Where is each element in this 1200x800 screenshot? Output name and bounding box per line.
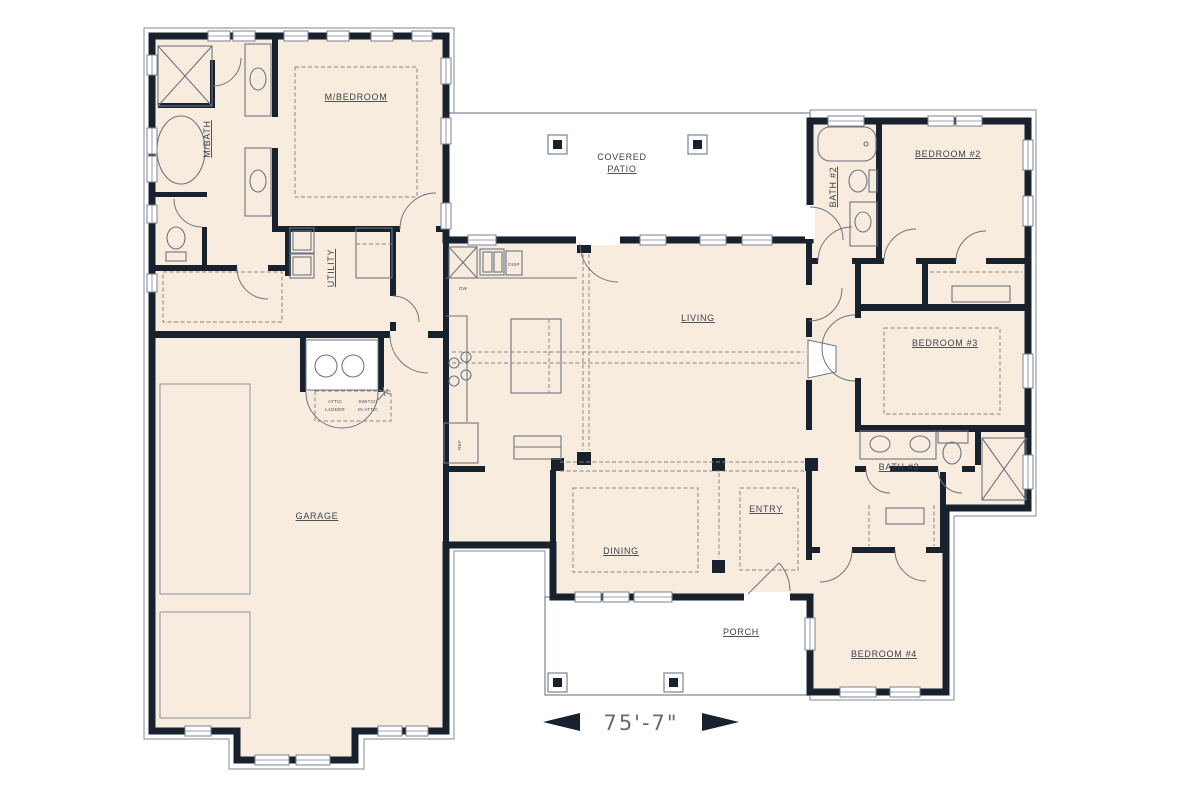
window <box>1023 196 1033 226</box>
window <box>468 235 496 245</box>
window <box>634 592 672 602</box>
water-heater-closet <box>306 340 378 390</box>
window <box>700 235 726 245</box>
window <box>147 156 157 182</box>
wall-hall-bed3-lower <box>855 378 861 430</box>
window <box>890 687 920 697</box>
label-dining: DINING <box>603 546 639 556</box>
window <box>147 205 157 223</box>
wall-bath3-shower <box>975 432 981 465</box>
window <box>742 235 772 245</box>
patio-hall-door-gap <box>805 205 815 239</box>
window <box>233 31 255 41</box>
floor-plan-page: ATTIC LADDER SWITCH IN ATTIC M/BEDROOM M… <box>0 0 1200 800</box>
label-master-bath: M/BATH <box>202 120 212 158</box>
window <box>185 726 211 736</box>
wall-bath3-south-a <box>855 466 866 472</box>
wall-closet-north <box>152 265 237 271</box>
window <box>147 274 157 292</box>
label-covered-patio-1: COVERED <box>597 152 646 162</box>
window <box>208 31 230 41</box>
front-door-gap <box>744 592 790 602</box>
attic-note-text-1: ATTIC <box>328 399 342 404</box>
patio-post <box>688 135 707 154</box>
wall-utility-east-stub <box>390 322 396 331</box>
wall-wc-north <box>152 192 207 197</box>
attic-note-text-2: LADDER <box>325 407 345 412</box>
wall-bath2-south-a <box>810 258 818 264</box>
label-bath2: BATH #2 <box>828 167 838 208</box>
label-disposal: DISP <box>508 262 520 267</box>
porch-post <box>664 673 683 692</box>
window <box>327 31 349 41</box>
label-refrigerator: REF <box>457 440 462 450</box>
wall-whcloset-west <box>300 338 306 392</box>
wall-living-hall-3 <box>806 380 812 430</box>
wall-bed4-north-b <box>852 547 895 553</box>
label-bath3: BATH #3 <box>879 462 920 472</box>
label-utility: UTILITY <box>326 249 336 287</box>
label-bedroom3: BEDROOM #3 <box>912 338 978 348</box>
label-covered-patio-2: PATIO <box>607 164 636 174</box>
column-dining-entry-bottom <box>712 560 725 573</box>
wall-bath3-south-c <box>962 466 975 472</box>
dimension-text: 75'-7" <box>603 711 678 735</box>
patio-post <box>548 135 567 154</box>
label-master-bedroom: M/BEDROOM <box>325 92 388 102</box>
window <box>1023 354 1033 388</box>
covered-patio-area <box>447 113 810 237</box>
window <box>828 116 864 126</box>
attic-note-text-4: IN ATTIC <box>358 407 379 412</box>
window <box>805 618 815 650</box>
porch-post <box>548 673 567 692</box>
wall-kitchen-south <box>443 466 485 472</box>
window <box>441 58 451 84</box>
window <box>412 31 432 41</box>
window <box>147 55 157 75</box>
window <box>284 31 308 41</box>
label-entry: ENTRY <box>749 504 783 514</box>
column-dining-west <box>551 458 564 471</box>
wall-whcloset-east <box>378 338 384 392</box>
window <box>406 726 428 736</box>
window <box>575 592 601 602</box>
window <box>1023 140 1033 170</box>
window <box>255 755 289 765</box>
window <box>640 235 666 245</box>
wall-mbed-south <box>272 226 400 232</box>
dimension-arrow-left <box>543 713 580 731</box>
label-living: LIVING <box>681 313 715 323</box>
window <box>441 118 451 144</box>
window <box>603 592 629 602</box>
window <box>378 726 402 736</box>
wall-bed4-north-c <box>926 547 946 553</box>
floor-plan-drawing: ATTIC LADDER SWITCH IN ATTIC M/BEDROOM M… <box>0 0 1200 800</box>
wall-garage-kitchen <box>443 240 449 545</box>
dimension-arrow-right <box>702 713 739 731</box>
wall-wc-east <box>202 227 207 265</box>
wall-utility-east <box>390 226 396 296</box>
window <box>956 116 982 126</box>
window <box>371 31 393 41</box>
window <box>296 755 330 765</box>
dimension-annotation: 75'-7" <box>543 711 739 735</box>
window <box>840 687 876 697</box>
wall-garage-top-stub <box>428 331 446 338</box>
label-porch: PORCH <box>723 627 759 637</box>
label-dishwasher: DW <box>459 286 468 291</box>
label-garage: GARAGE <box>296 511 339 521</box>
window <box>928 116 954 126</box>
column-dining-entry-top <box>712 458 725 471</box>
wall-garage-top <box>152 331 390 338</box>
wall-bath2-south-b <box>852 258 884 264</box>
wall-bed2-closet-west <box>922 262 928 308</box>
column-kitchen-living-bottom <box>577 452 591 465</box>
wall-mbath-mbed-lower <box>272 148 278 232</box>
patio-door-gap <box>576 235 620 245</box>
label-bedroom2: BEDROOM #2 <box>915 149 981 159</box>
wall-mbath-mbed-upper <box>272 36 278 117</box>
wall-bed3-north <box>855 304 1028 311</box>
wall-dining-west <box>550 470 556 600</box>
window <box>1023 455 1033 489</box>
wall-entry-east <box>806 468 812 560</box>
window <box>441 203 451 229</box>
wall-bed2-closet-south <box>986 258 1028 264</box>
window <box>147 128 157 154</box>
attic-note-text-3: SWITCH <box>358 399 377 404</box>
label-bedroom4: BEDROOM #4 <box>851 649 917 659</box>
